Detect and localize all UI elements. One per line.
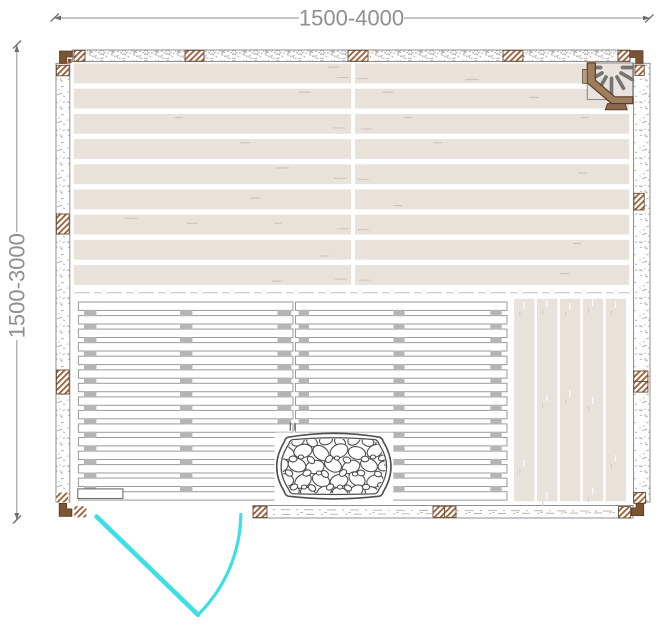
svg-text:1500-3000: 1500-3000 (5, 233, 30, 338)
svg-text:1500-4000: 1500-4000 (299, 6, 404, 31)
